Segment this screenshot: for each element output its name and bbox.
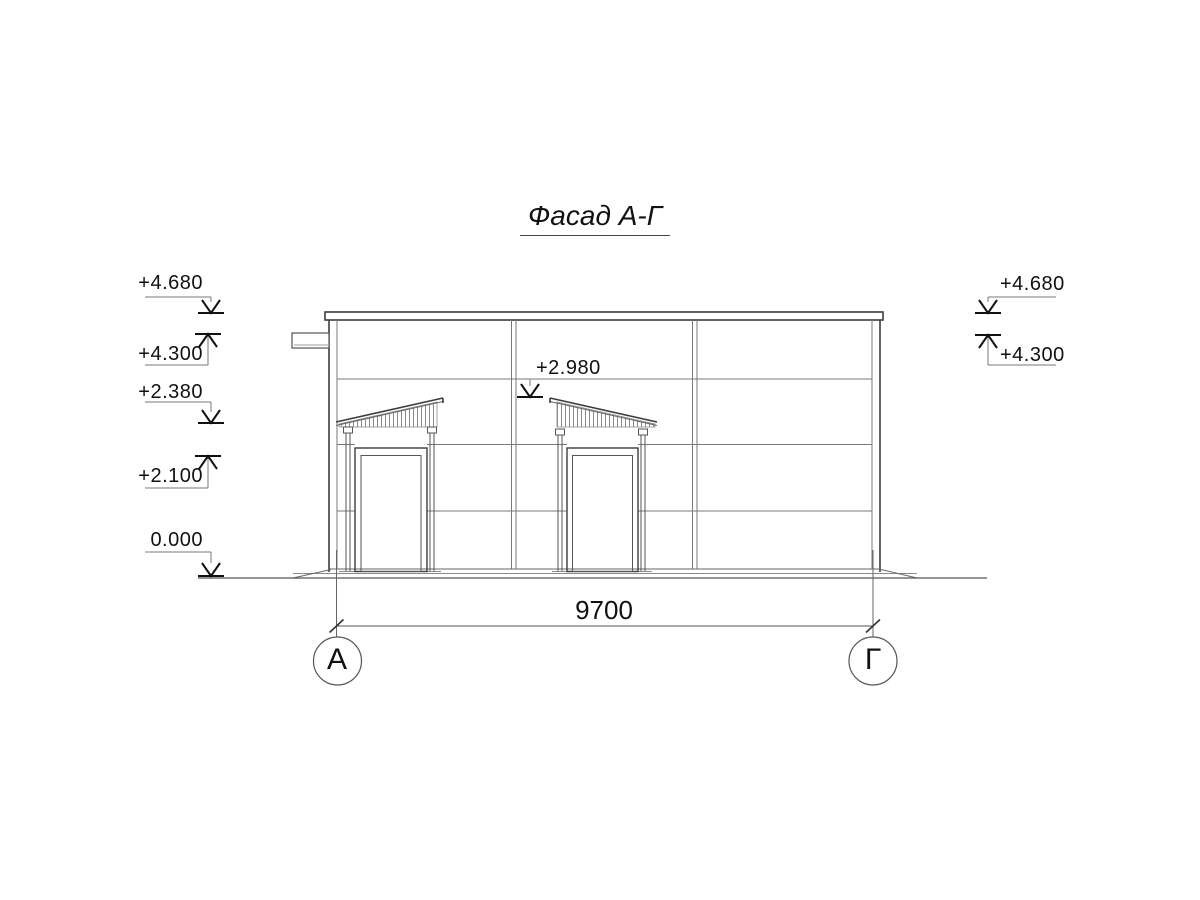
entrance-door-1: [336, 398, 443, 572]
door-2-leaf: [573, 456, 633, 572]
base-plinth: [198, 569, 987, 578]
entrance-door-2: [550, 398, 657, 572]
parapet-cap: [325, 312, 883, 320]
elevation-label-left-4680: +4.680: [118, 273, 203, 293]
drawing-title-text: Фасад А-Г: [520, 202, 670, 236]
elevation-marks: [145, 297, 1056, 576]
wall-projection: [292, 333, 329, 348]
axis-label-G: Г: [849, 645, 897, 675]
axis-label-A: А: [313, 645, 361, 675]
door-2-frame: [567, 448, 638, 572]
elevation-label-right-4300: +4.300: [1000, 345, 1065, 365]
elevation-label-left-0000: 0.000: [118, 530, 203, 550]
door-1-frame: [355, 448, 427, 572]
door-1-leaf: [361, 456, 421, 572]
elevation-label-left-2100: +2.100: [118, 466, 203, 486]
facade-drawing-sheet: Фасад А-Г +4.680 +4.300 +2.380 +2.100 0.…: [0, 0, 1200, 900]
facade-linework: [0, 0, 1200, 900]
elevation-label-right-4680: +4.680: [1000, 274, 1065, 294]
drawing-title: Фасад А-Г: [455, 202, 735, 236]
elevation-label-left-2380: +2.380: [118, 382, 203, 402]
elevation-label-canopy-2980: +2.980: [536, 358, 601, 378]
building-structure: [198, 312, 987, 578]
elevation-arrow-icon: [198, 563, 224, 576]
elevation-label-left-4300: +4.300: [118, 344, 203, 364]
dimension-value: 9700: [560, 597, 648, 623]
